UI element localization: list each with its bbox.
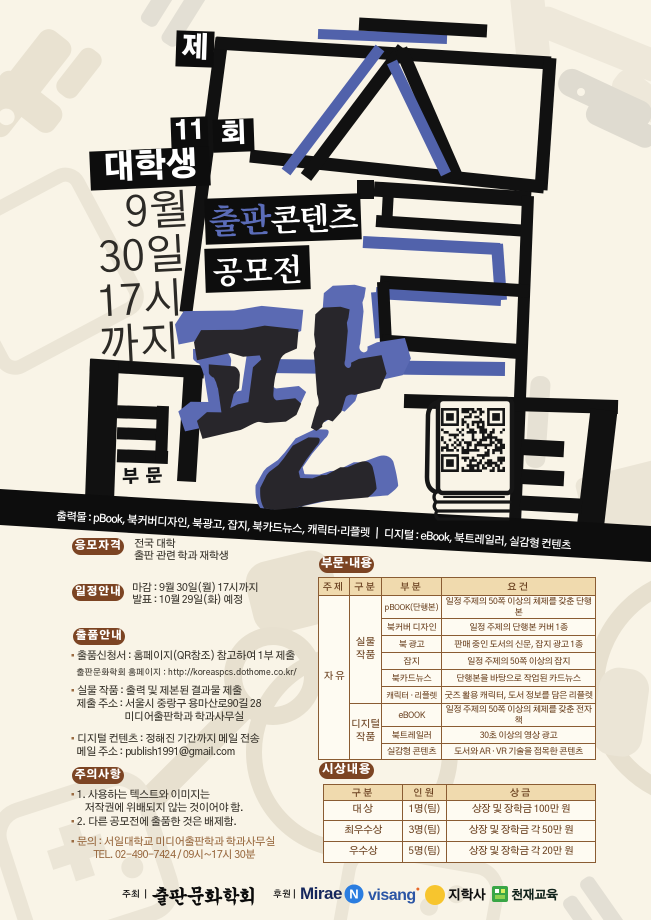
svg-text:N: N xyxy=(349,887,358,902)
